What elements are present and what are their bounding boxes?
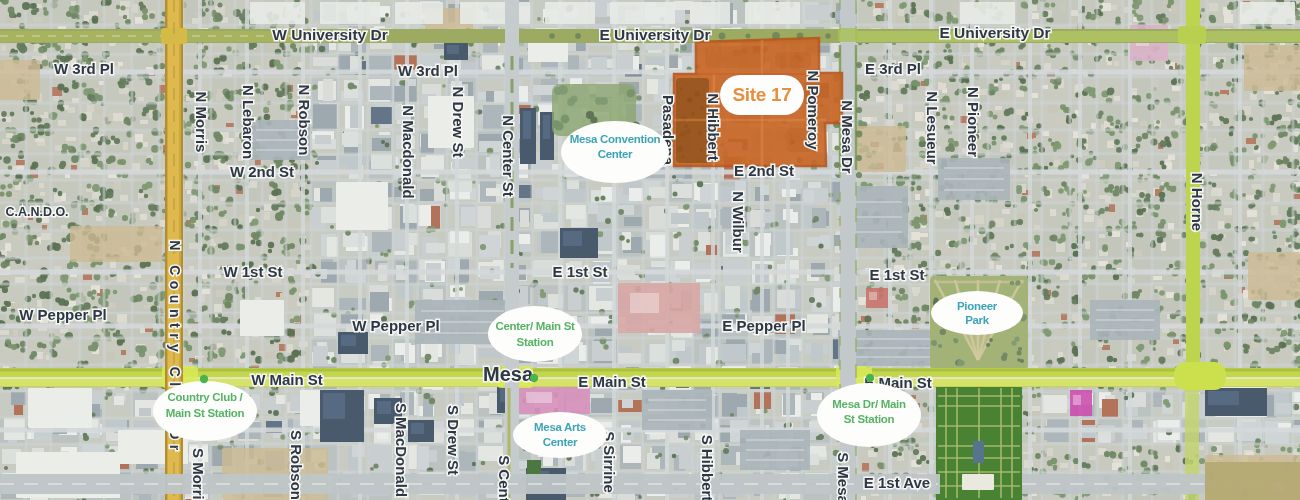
svg-text:E University Dr: E University Dr: [599, 26, 710, 43]
svg-text:N Drew St: N Drew St: [450, 87, 467, 158]
svg-text:N Center St: N Center St: [500, 115, 517, 197]
svg-text:N Mesa Dr: N Mesa Dr: [839, 100, 856, 174]
svg-text:W Main St: W Main St: [251, 371, 323, 388]
svg-text:W 1st St: W 1st St: [223, 263, 282, 280]
svg-text:Country Club /: Country Club /: [167, 391, 243, 403]
svg-text:S Center: S Center: [496, 455, 513, 500]
svg-text:W University Dr: W University Dr: [272, 26, 387, 43]
svg-text:N Lesueur: N Lesueur: [924, 91, 941, 165]
svg-text:N Wilbur: N Wilbur: [730, 191, 747, 253]
svg-text:N Lebaron: N Lebaron: [240, 85, 257, 159]
svg-text:Center: Center: [598, 148, 633, 160]
svg-text:W 3rd Pl: W 3rd Pl: [398, 62, 458, 79]
svg-text:E 1st Ave: E 1st Ave: [864, 474, 930, 491]
svg-text:W Pepper Pl: W Pepper Pl: [352, 317, 440, 334]
svg-text:Mesa: Mesa: [483, 363, 534, 385]
svg-text:N Horne: N Horne: [1189, 173, 1206, 231]
svg-text:N Hibbert: N Hibbert: [705, 93, 722, 161]
svg-text:Park: Park: [965, 314, 990, 326]
svg-text:St Station: St Station: [844, 413, 895, 425]
svg-text:N Morris: N Morris: [193, 92, 210, 153]
svg-text:S Morris: S Morris: [190, 448, 207, 500]
svg-text:E 2nd St: E 2nd St: [734, 162, 794, 179]
svg-text:E 3rd Pl: E 3rd Pl: [865, 60, 921, 77]
svg-text:Station: Station: [517, 336, 554, 348]
svg-text:N Macdonald: N Macdonald: [400, 105, 417, 198]
svg-text:W 3rd Pl: W 3rd Pl: [54, 60, 114, 77]
svg-text:E 1st St: E 1st St: [869, 266, 924, 283]
svg-text:Center: Center: [543, 436, 578, 448]
svg-text:W 2nd St: W 2nd St: [230, 163, 294, 180]
svg-text:E 1st St: E 1st St: [552, 263, 607, 280]
svg-text:S MacDonald: S MacDonald: [393, 403, 410, 497]
svg-text:Main St Station: Main St Station: [166, 407, 245, 419]
svg-text:W Pepper Pl: W Pepper Pl: [19, 306, 107, 323]
svg-text:Mesa Dr/ Main: Mesa Dr/ Main: [832, 398, 906, 410]
svg-text:E University Dr: E University Dr: [939, 24, 1050, 41]
svg-text:Mesa Convention: Mesa Convention: [570, 133, 661, 145]
svg-text:C.A.N.D.O.: C.A.N.D.O.: [5, 205, 68, 219]
svg-text:S Drew St: S Drew St: [445, 405, 462, 475]
svg-text:S Hibbert: S Hibbert: [699, 435, 716, 500]
svg-text:Pioneer: Pioneer: [957, 300, 998, 312]
svg-text:E Main St: E Main St: [578, 373, 646, 390]
svg-text:N Pioneer: N Pioneer: [965, 87, 982, 157]
svg-text:N Pomeroy: N Pomeroy: [805, 70, 822, 150]
svg-text:N Robson: N Robson: [296, 85, 313, 156]
svg-text:Site 17: Site 17: [732, 84, 791, 105]
svg-text:Mesa Arts: Mesa Arts: [534, 421, 586, 433]
svg-text:S Mesa: S Mesa: [835, 452, 852, 500]
svg-text:S Robson: S Robson: [288, 430, 305, 500]
svg-text:E Pepper Pl: E Pepper Pl: [722, 317, 805, 334]
svg-text:Center/ Main St: Center/ Main St: [495, 320, 575, 332]
